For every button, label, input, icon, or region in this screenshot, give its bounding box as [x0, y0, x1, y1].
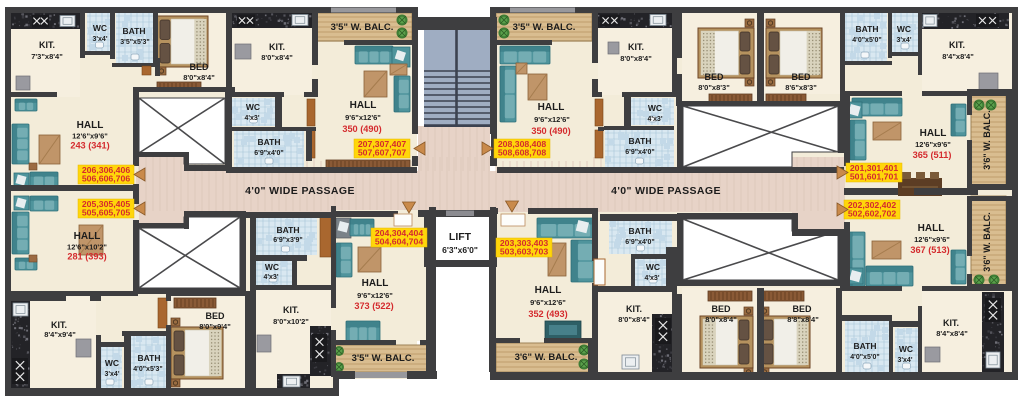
svg-text:BATH: BATH — [629, 136, 652, 146]
svg-text:8'0"x8'4": 8'0"x8'4" — [261, 53, 293, 62]
svg-text:350 (490): 350 (490) — [531, 126, 570, 136]
svg-text:LIFT: LIFT — [449, 231, 472, 243]
svg-text:HALL: HALL — [74, 231, 101, 242]
svg-text:BED: BED — [189, 62, 209, 72]
svg-text:6'9"x3'9": 6'9"x3'9" — [273, 237, 302, 244]
svg-text:3'6" W. BALC.: 3'6" W. BALC. — [982, 212, 992, 271]
svg-text:8'0"x8'3": 8'0"x8'3" — [698, 83, 730, 92]
svg-text:9'6"x12'6": 9'6"x12'6" — [534, 115, 570, 124]
svg-text:4'x3': 4'x3' — [244, 115, 259, 122]
svg-text:KIT.: KIT. — [283, 305, 299, 315]
svg-text:WC: WC — [646, 262, 660, 272]
svg-text:8'4"x8'4": 8'4"x8'4" — [942, 52, 974, 61]
svg-text:KIT.: KIT. — [628, 42, 644, 52]
svg-text:HALL: HALL — [362, 278, 389, 289]
svg-text:HALL: HALL — [350, 100, 377, 111]
svg-text:367 (513): 367 (513) — [910, 245, 949, 255]
svg-text:3'6" W. BALC.: 3'6" W. BALC. — [982, 110, 992, 169]
svg-text:3'x4': 3'x4' — [897, 357, 912, 364]
svg-text:281 (393): 281 (393) — [67, 252, 106, 262]
svg-text:8'4"x8'4": 8'4"x8'4" — [936, 329, 968, 338]
svg-text:WC: WC — [899, 344, 913, 354]
svg-text:3'5" W. BALC.: 3'5" W. BALC. — [331, 22, 394, 33]
svg-text:WC: WC — [105, 358, 119, 368]
svg-text:3'5"x5'3": 3'5"x5'3" — [120, 39, 149, 46]
svg-text:8'0"x8'4": 8'0"x8'4" — [620, 54, 652, 63]
svg-text:BED: BED — [704, 72, 724, 82]
svg-text:3'5" W. BALC.: 3'5" W. BALC. — [513, 22, 576, 33]
svg-text:8'8"x8'4": 8'8"x8'4" — [787, 315, 819, 324]
svg-text:352 (493): 352 (493) — [528, 309, 567, 319]
svg-text:HALL: HALL — [77, 120, 104, 131]
svg-text:BED: BED — [792, 304, 812, 314]
svg-text:373 (522): 373 (522) — [354, 301, 393, 311]
svg-text:KIT.: KIT. — [949, 40, 965, 50]
svg-text:508,608,708: 508,608,708 — [498, 148, 546, 158]
svg-text:3'x4': 3'x4' — [104, 371, 119, 378]
svg-text:HALL: HALL — [535, 285, 562, 296]
svg-text:BATH: BATH — [856, 24, 879, 34]
svg-text:8'0"x8'4": 8'0"x8'4" — [618, 315, 650, 324]
svg-text:501,601,701: 501,601,701 — [850, 172, 898, 182]
svg-text:8'0"x10'2": 8'0"x10'2" — [273, 317, 309, 326]
svg-text:4'0" WIDE PASSAGE: 4'0" WIDE PASSAGE — [245, 185, 355, 197]
svg-text:12'6"x9'6": 12'6"x9'6" — [915, 140, 951, 149]
svg-text:4'0"x5'0": 4'0"x5'0" — [852, 37, 881, 44]
svg-text:HALL: HALL — [538, 102, 565, 113]
svg-text:HALL: HALL — [920, 128, 947, 139]
svg-text:4'0" WIDE PASSAGE: 4'0" WIDE PASSAGE — [611, 185, 721, 197]
svg-text:7'3"x8'4": 7'3"x8'4" — [31, 52, 63, 61]
svg-text:3'5" W. BALC.: 3'5" W. BALC. — [352, 353, 415, 364]
svg-text:4'x3': 4'x3' — [647, 116, 662, 123]
svg-text:365 (511): 365 (511) — [913, 150, 952, 160]
svg-text:4'0"x5'3": 4'0"x5'3" — [133, 366, 162, 373]
svg-text:505,605,705: 505,605,705 — [82, 208, 130, 218]
svg-text:350 (490): 350 (490) — [342, 124, 381, 134]
svg-text:BATH: BATH — [854, 341, 877, 351]
svg-text:BED: BED — [791, 72, 811, 82]
svg-text:BATH: BATH — [123, 26, 146, 36]
svg-text:WC: WC — [648, 103, 662, 113]
svg-text:4'0"x5'0": 4'0"x5'0" — [850, 354, 879, 361]
svg-text:6'9"x4'0": 6'9"x4'0" — [254, 150, 283, 157]
svg-text:504,604,704: 504,604,704 — [375, 237, 423, 247]
svg-text:3'x4': 3'x4' — [92, 36, 107, 43]
svg-text:6'3"x6'0": 6'3"x6'0" — [442, 245, 478, 255]
svg-text:BATH: BATH — [138, 353, 161, 363]
svg-text:12'6"x9'6": 12'6"x9'6" — [914, 235, 950, 244]
svg-text:WC: WC — [265, 262, 279, 272]
svg-text:8'0"x8'4": 8'0"x8'4" — [705, 315, 737, 324]
svg-text:WC: WC — [93, 23, 107, 33]
svg-text:KIT.: KIT. — [51, 320, 67, 330]
svg-text:8'6"x8'3": 8'6"x8'3" — [785, 83, 817, 92]
svg-text:12'6"x9'6": 12'6"x9'6" — [72, 132, 108, 141]
svg-text:502,602,702: 502,602,702 — [848, 209, 896, 219]
svg-text:WC: WC — [246, 102, 260, 112]
svg-text:506,606,706: 506,606,706 — [82, 174, 130, 184]
svg-text:BATH: BATH — [277, 225, 300, 235]
svg-text:3'x4': 3'x4' — [896, 37, 911, 44]
svg-text:503,603,703: 503,603,703 — [500, 247, 548, 257]
svg-text:9'6"x12'6": 9'6"x12'6" — [530, 298, 566, 307]
svg-text:9'6"x12'6": 9'6"x12'6" — [357, 291, 393, 300]
svg-text:KIT.: KIT. — [626, 304, 642, 314]
svg-text:BED: BED — [205, 311, 225, 321]
svg-text:BED: BED — [711, 304, 731, 314]
svg-text:WC: WC — [897, 24, 911, 34]
svg-text:9'6"x12'6": 9'6"x12'6" — [345, 113, 381, 122]
svg-text:3'6" W. BALC.: 3'6" W. BALC. — [515, 352, 578, 363]
svg-text:8'0"x8'4": 8'0"x8'4" — [183, 73, 215, 82]
svg-text:243 (341): 243 (341) — [70, 141, 109, 151]
svg-text:BATH: BATH — [629, 226, 652, 236]
svg-text:KIT.: KIT. — [943, 318, 959, 328]
svg-text:6'9"x4'0": 6'9"x4'0" — [625, 149, 654, 156]
svg-text:BATH: BATH — [258, 137, 281, 147]
svg-text:12'6"x10'2": 12'6"x10'2" — [67, 243, 107, 252]
svg-text:8'0"x9'4": 8'0"x9'4" — [199, 322, 231, 331]
svg-text:4'x3': 4'x3' — [263, 274, 278, 281]
svg-text:4'x3': 4'x3' — [644, 275, 659, 282]
svg-text:KIT.: KIT. — [269, 42, 285, 52]
svg-text:KIT.: KIT. — [39, 40, 55, 50]
svg-text:8'4"x9'4": 8'4"x9'4" — [44, 330, 76, 339]
svg-text:6'9"x4'0": 6'9"x4'0" — [625, 239, 654, 246]
svg-text:HALL: HALL — [918, 223, 945, 234]
svg-text:507,607,707: 507,607,707 — [358, 148, 406, 158]
